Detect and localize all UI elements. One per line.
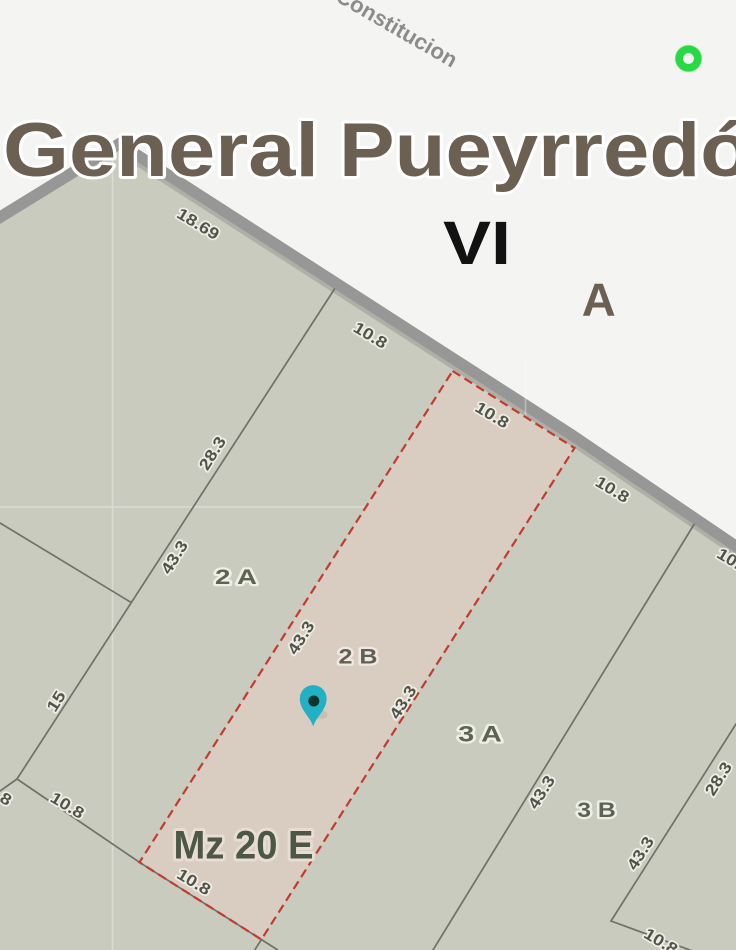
svg-text:Pueyrredón: Pueyrredón xyxy=(339,108,736,193)
svg-text:2 B: 2 B xyxy=(339,645,378,669)
svg-text:2 A: 2 A xyxy=(215,565,257,589)
svg-text:General: General xyxy=(3,108,319,193)
svg-text:Mz 20 E: Mz 20 E xyxy=(174,824,314,868)
svg-text:VI: VI xyxy=(443,209,511,278)
svg-text:A: A xyxy=(582,274,616,326)
svg-text:3 B: 3 B xyxy=(577,798,616,822)
svg-text:3 A: 3 A xyxy=(458,722,502,747)
